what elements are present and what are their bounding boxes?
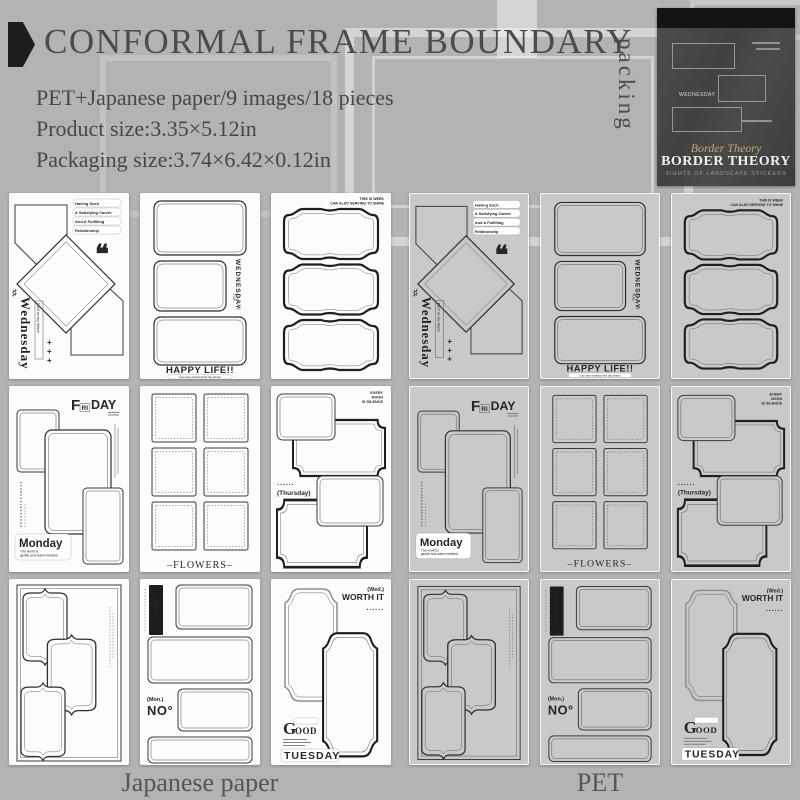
- package-text-mark: [742, 120, 772, 122]
- friday-f: F: [71, 397, 80, 414]
- sheet-rect-tags: [409, 579, 529, 765]
- sheet-title: –FLOWERS–: [166, 560, 233, 571]
- product-specs: PET+Japanese paper/9 images/18 pieces Pr…: [36, 82, 394, 175]
- friday-f: F: [471, 399, 480, 415]
- no-title: NO°: [548, 702, 574, 717]
- sharp-icon: ♯: [12, 288, 17, 299]
- top-note: CAN ALSO SERVING TO SHINE: [730, 203, 783, 207]
- quote-icon: ❝: [95, 240, 109, 269]
- dots-mark: ......: [366, 605, 384, 612]
- top-note: EVERY: [770, 392, 783, 396]
- top-note: CAN ALSO SERVING TO SHINE: [330, 202, 384, 206]
- note-line: Having Such: [75, 201, 100, 206]
- plus-mark: +: [447, 355, 452, 364]
- plus-mark: +: [47, 347, 52, 356]
- good-ood: OOD: [696, 725, 718, 735]
- no-title: NO°: [147, 703, 173, 718]
- arrow-marker-icon: [8, 22, 35, 67]
- black-tag-label: 12 MONTHS: [152, 589, 158, 622]
- worthit-title: WORTH IT: [342, 592, 385, 602]
- sheet-worthit-tuesday: (Wed.) WORTH IT ...... G OOD TUESDAY: [671, 579, 791, 765]
- top-note: THIS IS WEEK: [360, 197, 385, 201]
- monday-sub: gentle and warm-hearted: [20, 554, 58, 558]
- spec-product-size: Product size:3.35×5.12in: [36, 113, 394, 144]
- sharp-icon: ♯: [413, 288, 418, 299]
- dots-mark: ......: [277, 480, 295, 487]
- package-frame-decoration: [672, 43, 735, 69]
- sheet-thursday-labels: EVERY NOON IS SILENCE ...... (Thursday): [271, 386, 391, 572]
- note-line: And A Fulfilling: [75, 219, 105, 224]
- sheet-thursday-labels: EVERY NOON IS SILENCE ...... (Thursday): [671, 386, 791, 572]
- sheet-subtitle: (can also working hard day shine): [179, 375, 221, 379]
- tue-label: TUE.: [631, 293, 636, 302]
- friday-ri: RI: [481, 406, 488, 413]
- sheet-week-ornate: THIS IS WEEK CAN ALSO SERVING TO SHINE: [271, 193, 391, 379]
- tuesday-title: TUESDAY: [284, 750, 340, 762]
- sticker-sheet-board: Having Such A Satisfying Career And A Fu…: [0, 193, 800, 765]
- note-pills: Having Such A Satisfying Career And A Fu…: [73, 199, 121, 234]
- monday-sub: gentle and warm-hearted: [421, 552, 458, 556]
- sheet-subtitle: (can also working hard day shine): [579, 373, 620, 377]
- caption-pet: PET: [400, 768, 800, 798]
- japanese-paper-grid: Having Such A Satisfying Career And A Fu…: [9, 193, 391, 765]
- sheet-title: HAPPY LIFE!!: [567, 364, 634, 374]
- sheet-wednesday-diamond: Having Such A Satisfying Career And A Fu…: [9, 193, 129, 379]
- background-frame-decoration: [372, 56, 654, 208]
- vertical-day-label: Wednesday: [419, 297, 433, 368]
- spec-material: PET+Japanese paper/9 images/18 pieces: [36, 82, 394, 113]
- note-pills: Having Such A Satisfying Career And A Fu…: [473, 200, 520, 234]
- vertical-day-label: Wednesday: [18, 297, 33, 370]
- monday-title: Monday: [19, 538, 63, 550]
- sheet-flowers-grid: –FLOWERS–: [540, 386, 660, 572]
- sheet-friday-monday: F RI DAY Monday The world is gentl: [9, 386, 129, 572]
- note-line: And A Fulfilling: [475, 220, 504, 225]
- friday-day: DAY: [91, 398, 117, 412]
- top-note: NOON: [372, 396, 384, 400]
- vertical-side-text: Don't be too Warm: [437, 303, 441, 332]
- note-line: Relationship: [475, 229, 499, 234]
- package-day-label: WEDNESDAY: [679, 92, 715, 98]
- sheet-friday-monday: F RI DAY Monday The world is gentl: [409, 386, 529, 572]
- plus-mark: +: [447, 337, 452, 346]
- quote-icon: ❝: [495, 240, 509, 269]
- worthit-title: WORTH IT: [742, 593, 783, 603]
- plus-mark: +: [47, 338, 52, 347]
- sheet-no-rectangles: 12 MONTHS (Mon.) NO°: [140, 579, 260, 765]
- top-note: THIS IS WEEK: [759, 198, 783, 202]
- package-text-mark: [756, 48, 780, 50]
- tuesday-title: TUESDAY: [685, 750, 740, 761]
- sheet-no-rectangles: 12 MONTHS (Mon.) NO°: [540, 579, 660, 765]
- note-line: Relationship: [75, 228, 100, 233]
- dots-mark: ......: [678, 480, 695, 487]
- sheet-wednesday-diamond: Having Such A Satisfying Career And A Fu…: [409, 193, 529, 379]
- sheet-worthit-tuesday: (Wed.) WORTH IT ...... G OOD TUESDAY: [271, 579, 391, 765]
- package-top-band: [657, 8, 795, 28]
- dots-mark: ......: [766, 606, 783, 613]
- flower-squares: [152, 394, 248, 550]
- sheet-title: –FLOWERS–: [567, 559, 633, 570]
- page-title: CONFORMAL FRAME BOUNDARY: [44, 22, 633, 62]
- top-note: IS SILENCE: [761, 401, 782, 405]
- monday-title: Monday: [420, 537, 463, 549]
- note-line: Having Such: [475, 202, 499, 207]
- friday-ri: RI: [82, 405, 89, 412]
- friday-day: DAY: [491, 399, 516, 413]
- note-line: A Satisfying Career: [75, 210, 112, 215]
- top-note: NOON: [771, 397, 782, 401]
- caption-japanese-paper: Japanese paper: [0, 768, 400, 798]
- package-text-mark: [752, 42, 780, 44]
- thursday-label: (Thursday): [277, 490, 311, 497]
- thursday-label: (Thursday): [678, 490, 711, 497]
- package-frame-decoration: [718, 75, 766, 102]
- package-title: BORDER THEORY: [657, 154, 795, 170]
- black-tag-label: 12 MONTHS: [552, 590, 558, 623]
- package-subtitle: SIGHTS OF LANDSCAPE STICKERS: [657, 171, 795, 177]
- top-note: EVERY: [370, 391, 383, 395]
- flower-squares: [553, 395, 647, 548]
- product-package-photo: WEDNESDAY Border Theory BORDER THEORY SI…: [657, 8, 795, 186]
- plus-mark: +: [447, 346, 452, 355]
- sheet-happy-life: WEDNESDAY TUE. HAPPY LIFE!! (can also wo…: [540, 193, 660, 379]
- pet-grid: Having Such A Satisfying Career And A Fu…: [409, 193, 791, 765]
- vertical-side-text: Don't be too Warm: [36, 303, 40, 333]
- sheet-week-ornate: THIS IS WEEK CAN ALSO SERVING TO SHINE: [671, 193, 791, 379]
- spec-packaging-size: Packaging size:3.74×6.42×0.12in: [36, 144, 394, 175]
- tue-label: TUE.: [232, 293, 237, 302]
- plus-mark: +: [47, 356, 52, 365]
- top-note: IS SILENCE: [362, 400, 384, 404]
- sheet-flowers-grid: –FLOWERS–: [140, 386, 260, 572]
- good-ood: OOD: [295, 726, 317, 736]
- sheet-rect-tags: [9, 579, 129, 765]
- sheet-happy-life: WEDNESDAY TUE. HAPPY LIFE!! (can also wo…: [140, 193, 260, 379]
- package-frame-decoration: [672, 107, 742, 132]
- material-captions: Japanese paper PET: [0, 768, 800, 798]
- packing-label: packing: [613, 38, 639, 132]
- note-line: A Satisfying Career: [475, 211, 512, 216]
